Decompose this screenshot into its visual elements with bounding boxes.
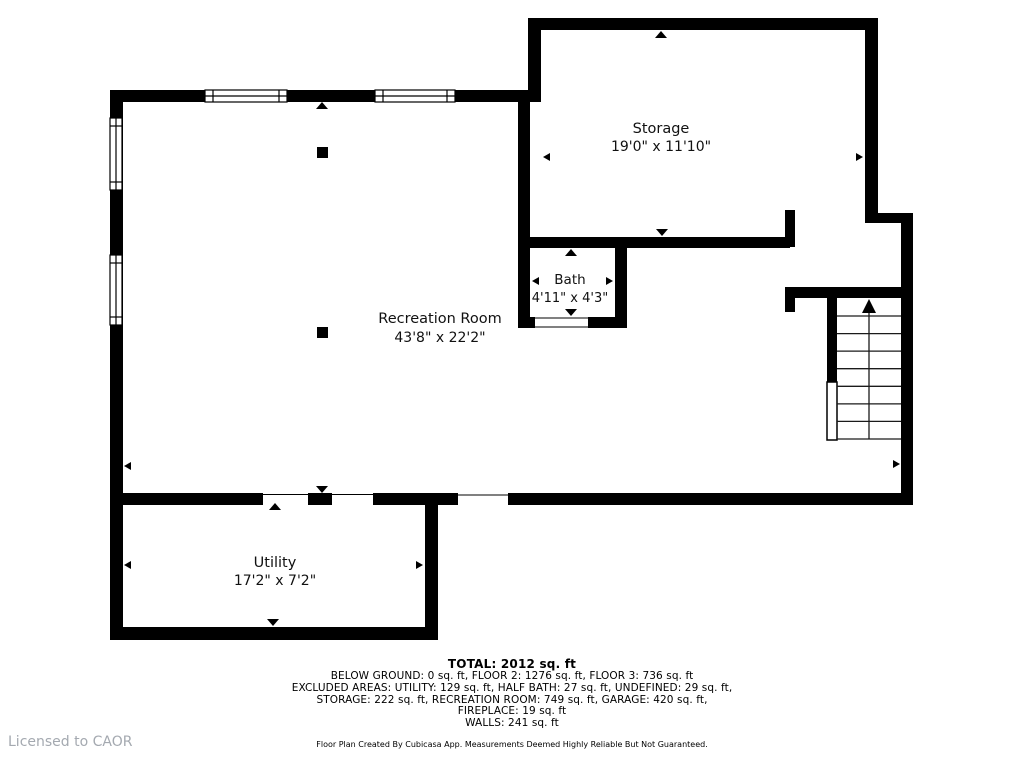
- wall-segment: [785, 287, 795, 312]
- stair-direction-arrow-icon: [862, 299, 876, 313]
- room-dims-recreation: 43'8" x 22'2": [394, 330, 485, 346]
- room-label-utility: Utility: [254, 555, 297, 571]
- room-label-bath: Bath: [554, 272, 585, 288]
- wall-segment: [110, 627, 438, 640]
- floor-plan-page: Storage 19'0" x 11'10" Bath 4'11" x 4'3"…: [0, 0, 1024, 768]
- room-label-storage: Storage: [633, 121, 690, 137]
- stairs: [827, 299, 901, 440]
- column-post: [317, 327, 328, 338]
- wall-segment: [425, 493, 438, 640]
- window: [205, 90, 287, 102]
- wall-segment: [615, 237, 627, 328]
- measure-arrow-icon: [416, 561, 423, 569]
- area-summary: TOTAL: 2012 sq. ft BELOW GROUND: 0 sq. f…: [0, 658, 1024, 749]
- walls: [110, 18, 913, 640]
- wall-segment: [901, 213, 913, 505]
- measure-arrow-icon: [267, 619, 279, 626]
- wall-segment: [308, 493, 332, 505]
- wall-segment: [518, 317, 535, 328]
- measure-arrow-icon: [655, 31, 667, 38]
- measure-arrow-icon: [269, 503, 281, 510]
- wall-segment: [588, 317, 627, 328]
- measure-arrow-icon: [565, 249, 577, 256]
- license-text: Licensed to CAOR: [8, 734, 132, 750]
- wall-segment: [528, 18, 878, 30]
- window: [110, 118, 122, 190]
- measure-arrow-icon: [606, 277, 613, 285]
- room-dims-bath: 4'11" x 4'3": [532, 291, 608, 306]
- wall-segment: [508, 493, 913, 505]
- measure-arrow-icon: [124, 462, 131, 470]
- column-post: [317, 147, 328, 158]
- measure-arrow-icon: [856, 153, 863, 161]
- measure-arrow-icon: [316, 486, 328, 493]
- windows: [110, 90, 455, 325]
- columns: [317, 147, 328, 338]
- window: [110, 255, 122, 325]
- wall-segment: [110, 90, 541, 102]
- wall-segment: [110, 493, 263, 505]
- measure-arrow-icon: [565, 309, 577, 316]
- measure-arrow-icon: [316, 102, 328, 109]
- wall-segment: [528, 18, 541, 102]
- room-labels: Storage 19'0" x 11'10" Bath 4'11" x 4'3"…: [234, 121, 711, 589]
- walls-area-text: WALLS: 241 sq. ft: [0, 718, 1024, 730]
- wall-segment: [518, 237, 790, 248]
- room-dims-storage: 19'0" x 11'10": [611, 139, 711, 155]
- wall-segment: [785, 287, 913, 298]
- measure-arrow-icon: [532, 277, 539, 285]
- room-dims-utility: 17'2" x 7'2": [234, 573, 316, 589]
- stair-railing: [827, 382, 837, 440]
- measure-arrow-icon: [124, 561, 131, 569]
- disclaimer-text: Floor Plan Created By Cubicasa App. Meas…: [0, 740, 1024, 749]
- wall-segment: [518, 90, 530, 328]
- excluded-areas-text: EXCLUDED AREAS: UTILITY: 129 sq. ft, HAL…: [0, 683, 1024, 695]
- measure-arrow-icon: [656, 229, 668, 236]
- wall-segment: [865, 18, 878, 223]
- measure-arrow-icon: [543, 153, 550, 161]
- wall-segment: [373, 493, 458, 505]
- measure-arrow-icon: [893, 460, 900, 468]
- wall-segment: [785, 210, 795, 247]
- measurement-arrows: [124, 31, 900, 626]
- window: [375, 90, 455, 102]
- room-label-recreation: Recreation Room: [378, 311, 501, 327]
- wall-segment: [827, 287, 837, 382]
- floor-plan-drawing: Storage 19'0" x 11'10" Bath 4'11" x 4'3"…: [0, 0, 1024, 768]
